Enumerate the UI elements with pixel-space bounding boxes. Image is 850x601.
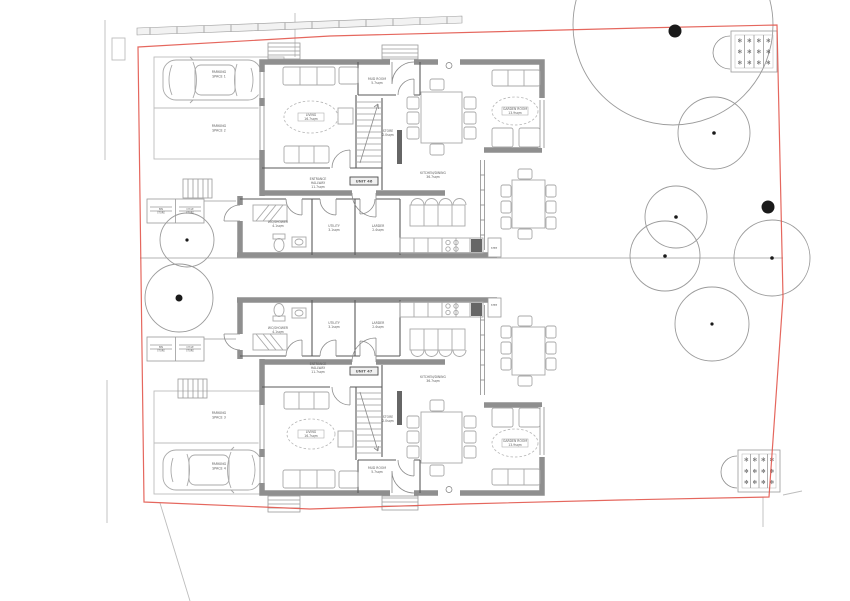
plant-symbol: ✻ [766, 59, 771, 66]
plant-symbol: ✻ [747, 37, 752, 44]
step-label: STEP [491, 303, 498, 307]
plant-symbol: ✻ [766, 37, 771, 44]
plant-symbol: ✻ [747, 48, 752, 55]
plant-symbol: ✻ [752, 479, 757, 486]
plant-symbol: ✻ [744, 479, 749, 486]
room-label: LIVING16.7sqm [304, 430, 317, 438]
tree-trunk-dot [770, 256, 774, 260]
plant-symbol: ✻ [761, 468, 766, 475]
plant-symbol: ✻ [756, 37, 761, 44]
plant-symbol: ✻ [756, 48, 761, 55]
courtyard-steps [178, 179, 212, 398]
room-label: ENTRANCEHALLWAY11.7sqm [310, 362, 327, 374]
tree-trunk-dot [176, 295, 183, 302]
plant-symbol: ✻ [752, 456, 757, 463]
tree-trunk-dot [185, 238, 188, 241]
proposed-tree-dot [669, 25, 682, 38]
room-label: ENTRANCEHALLWAY11.7sqm [310, 177, 327, 189]
room-label: LARDER2.4sqm [372, 224, 385, 232]
plant-symbol: ✻ [737, 48, 742, 55]
gate-pier [112, 38, 125, 60]
room-label: LARDER2.4sqm [372, 321, 385, 329]
tree-trunk-dot [663, 254, 667, 258]
store-label: CYCLESTORE [186, 346, 194, 352]
tree-trunk-dot [710, 322, 713, 325]
parking-label: PARKINGSPACE 2 [212, 124, 227, 132]
plant-symbol: ✻ [737, 59, 742, 66]
store-label: BINSTORE [157, 346, 165, 352]
plant-symbol: ✻ [766, 48, 771, 55]
tree-canopy [573, 0, 773, 125]
plant-symbol: ✻ [744, 468, 749, 475]
store-label: BINSTORE [157, 208, 165, 214]
car [163, 57, 261, 103]
unit-label: UNIT 46 [356, 178, 373, 183]
plant-symbol: ✻ [737, 37, 742, 44]
room-label: STORE2.0sqm [382, 129, 394, 137]
plant-symbol: ✻ [761, 479, 766, 486]
site-plan-svg: ✻✻✻✻✻✻✻✻✻✻✻✻✻✻✻✻✻✻✻✻✻✻✻✻ PARKINGSPACE 1P… [0, 0, 850, 601]
store-label: CYCLESTORE [186, 208, 194, 214]
plant-symbol: ✻ [756, 59, 761, 66]
room-label: UTILITY3.1sqm [328, 321, 340, 329]
step-label: STEP [491, 246, 498, 250]
tree-trunk-dot [674, 215, 678, 219]
plant-symbol: ✻ [747, 59, 752, 66]
plant-symbol: ✻ [752, 468, 757, 475]
street-wall [137, 16, 462, 35]
plant-symbol: ✻ [744, 456, 749, 463]
parking-label: PARKINGSPACE 1 [212, 70, 227, 78]
site-plan-page: ✻✻✻✻✻✻✻✻✻✻✻✻✻✻✻✻✻✻✻✻✻✻✻✻ PARKINGSPACE 1P… [0, 0, 850, 601]
unit-label: UNIT 47 [356, 368, 373, 373]
room-label: UTILITY3.1sqm [328, 224, 340, 232]
plant-symbols: ✻✻✻✻✻✻✻✻✻✻✻✻✻✻✻✻✻✻✻✻✻✻✻✻ [737, 37, 774, 486]
parking-label: PARKINGSPACE 3 [212, 411, 227, 419]
plant-symbol: ✻ [761, 456, 766, 463]
proposed-tree-dot [762, 201, 775, 214]
tree-trunk-dot [712, 131, 716, 135]
room-label: STORE2.0sqm [382, 415, 394, 423]
room-label: LIVING16.7sqm [304, 113, 317, 121]
parking-label: PARKINGSPACE 4 [212, 462, 227, 470]
